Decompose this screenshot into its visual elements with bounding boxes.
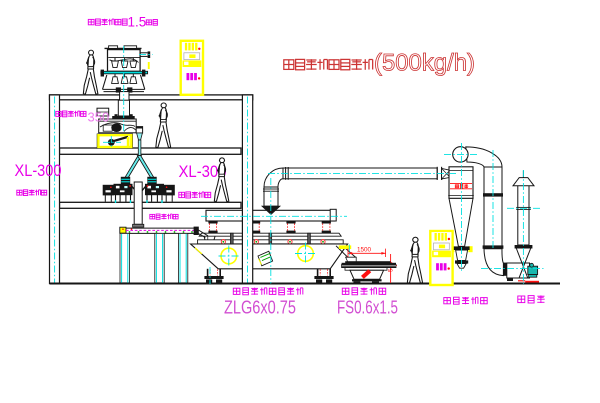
- svg-text:1.5: 1.5: [128, 15, 147, 30]
- svg-text:350: 350: [88, 110, 110, 125]
- svg-text:FS0.6x1.5: FS0.6x1.5: [337, 297, 398, 318]
- svg-text:ZLG6x0.75: ZLG6x0.75: [224, 297, 296, 318]
- svg-text:(500kg/h): (500kg/h): [374, 50, 475, 77]
- svg-text:XL-300: XL-300: [15, 161, 62, 180]
- svg-text:1500: 1500: [357, 247, 371, 254]
